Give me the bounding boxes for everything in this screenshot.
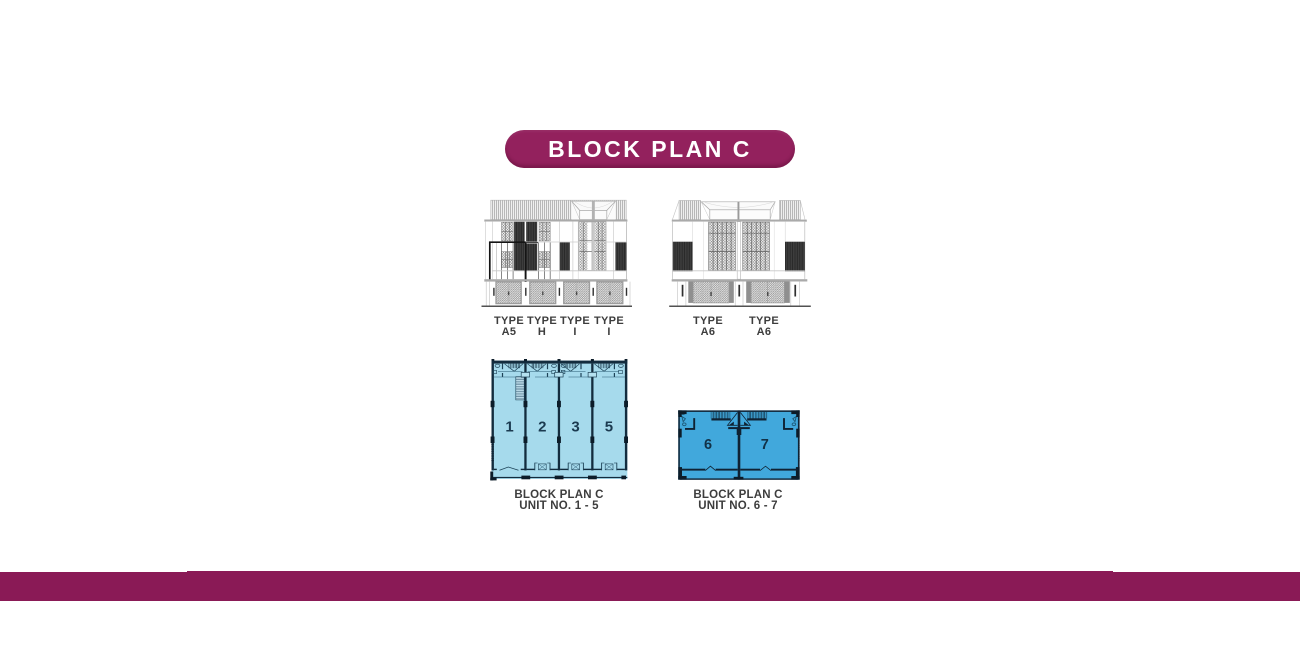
svg-text:1: 1	[505, 419, 513, 436]
svg-text:5: 5	[605, 419, 613, 436]
svg-text:3: 3	[571, 419, 579, 436]
svg-text:6: 6	[704, 437, 712, 453]
svg-text:2: 2	[538, 419, 546, 436]
svg-text:7: 7	[761, 437, 769, 453]
